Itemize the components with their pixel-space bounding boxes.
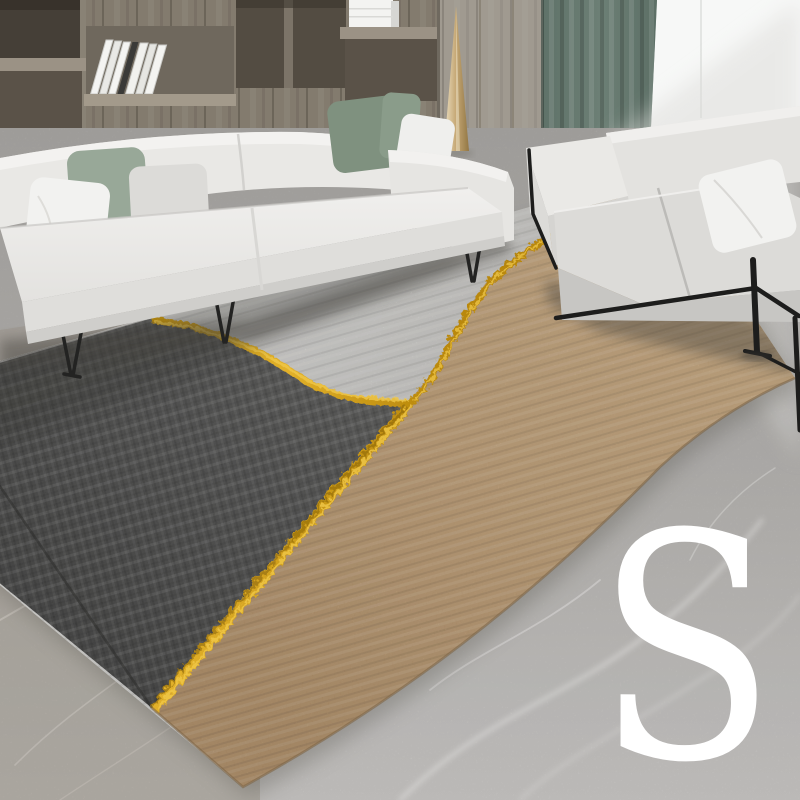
product-photo: S [0, 0, 800, 800]
size-letter: S [596, 468, 776, 800]
white-box [349, 0, 399, 27]
living-room-scene: S [0, 0, 800, 800]
shelf-cavity [345, 39, 437, 101]
curtain [541, 0, 657, 134]
size-label: S [596, 468, 776, 800]
shelf-board [84, 94, 236, 106]
shelf-divider [284, 0, 293, 88]
shelf-board [0, 58, 90, 71]
shelf-board [340, 27, 437, 39]
